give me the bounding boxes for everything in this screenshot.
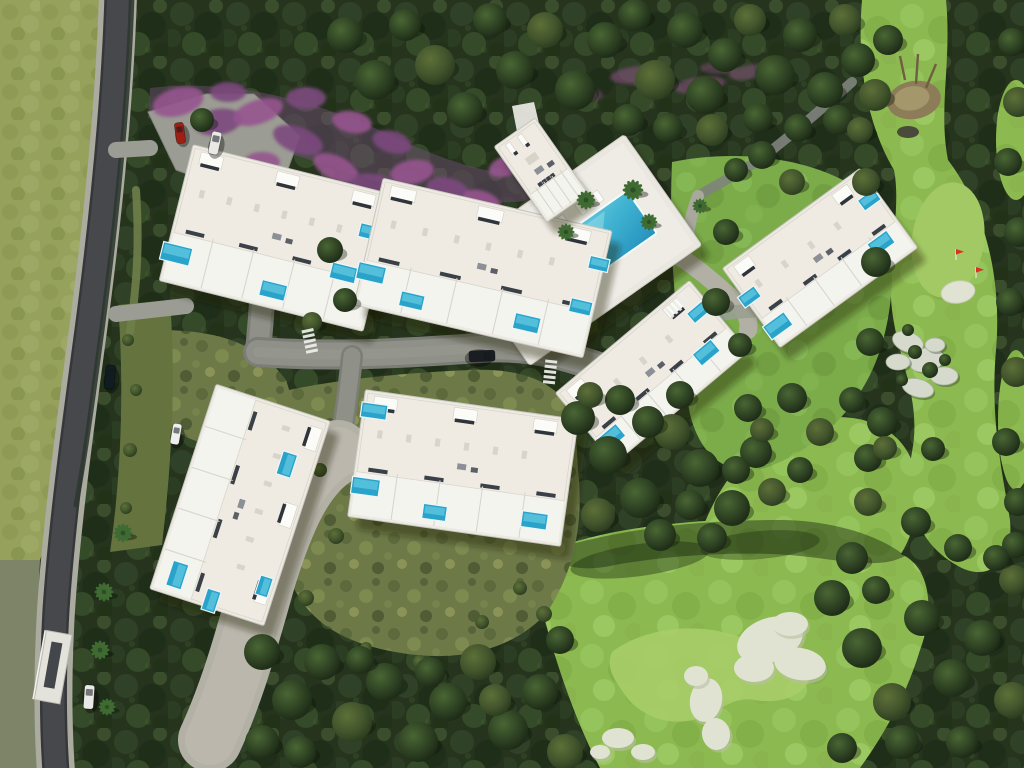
olive-bush bbox=[328, 528, 344, 544]
olive-bush bbox=[120, 502, 132, 514]
tree bbox=[839, 387, 865, 413]
sand-bunker bbox=[772, 612, 808, 636]
tree bbox=[581, 498, 615, 532]
tree bbox=[996, 288, 1024, 316]
tree bbox=[488, 710, 528, 750]
tree bbox=[555, 70, 595, 110]
tree bbox=[873, 683, 911, 721]
tree bbox=[327, 17, 363, 53]
tree bbox=[992, 428, 1020, 456]
rooftop-unit bbox=[471, 467, 479, 473]
tree bbox=[714, 490, 750, 526]
rooftop-unit bbox=[457, 463, 467, 470]
olive-bush bbox=[298, 590, 314, 606]
sand-bunker bbox=[590, 745, 610, 759]
sand-bunker bbox=[602, 728, 634, 748]
tree bbox=[854, 488, 882, 516]
tree bbox=[862, 576, 890, 604]
tree bbox=[807, 72, 843, 108]
tree bbox=[675, 490, 705, 520]
tree bbox=[873, 436, 897, 460]
tree bbox=[933, 659, 971, 697]
tree bbox=[983, 545, 1009, 571]
tree bbox=[734, 4, 766, 36]
olive-bush bbox=[123, 443, 137, 457]
tree bbox=[787, 457, 813, 483]
tree bbox=[901, 507, 931, 537]
tree bbox=[921, 437, 945, 461]
tree bbox=[398, 722, 438, 762]
purple-shrub bbox=[210, 82, 246, 102]
tree bbox=[473, 3, 507, 37]
rock-shrub bbox=[908, 345, 922, 359]
tree bbox=[333, 288, 357, 312]
tree bbox=[750, 418, 774, 442]
tree bbox=[708, 38, 742, 72]
tree bbox=[859, 79, 891, 111]
tree bbox=[667, 12, 703, 48]
rock-shrub bbox=[939, 354, 951, 366]
sand-bunker bbox=[684, 666, 708, 686]
aerial-site-render bbox=[0, 0, 1024, 768]
tree bbox=[964, 620, 1000, 656]
purple-shrub bbox=[286, 87, 326, 109]
tree bbox=[460, 644, 496, 680]
tree bbox=[944, 534, 972, 562]
tree bbox=[743, 103, 773, 133]
parking-entry bbox=[116, 148, 150, 150]
tree bbox=[836, 542, 868, 574]
tree bbox=[284, 736, 316, 768]
tree bbox=[355, 60, 395, 100]
tree bbox=[635, 60, 675, 100]
tree bbox=[666, 381, 694, 409]
rock-waterfall bbox=[886, 354, 910, 370]
tree bbox=[644, 519, 676, 551]
tree bbox=[653, 113, 683, 143]
tree bbox=[697, 523, 727, 553]
olive-bush bbox=[513, 581, 527, 595]
tree bbox=[904, 600, 940, 636]
tree bbox=[620, 478, 660, 518]
tree bbox=[847, 117, 873, 143]
tree bbox=[527, 12, 563, 48]
tree bbox=[758, 478, 786, 506]
tree bbox=[841, 43, 875, 77]
sand-bunker bbox=[734, 654, 774, 682]
tree bbox=[713, 219, 739, 245]
tree bbox=[317, 237, 343, 263]
scene-svg bbox=[0, 0, 1024, 768]
tree bbox=[755, 55, 795, 95]
tree bbox=[994, 148, 1022, 176]
tree bbox=[783, 18, 817, 52]
tree bbox=[304, 644, 340, 680]
tree bbox=[447, 92, 483, 128]
tree bbox=[496, 51, 534, 89]
tree bbox=[885, 725, 919, 759]
olive-bush bbox=[122, 334, 134, 346]
tree bbox=[946, 726, 978, 758]
tree bbox=[619, 0, 651, 31]
tree bbox=[867, 407, 897, 437]
tree bbox=[842, 628, 882, 668]
tree bbox=[479, 684, 511, 716]
tree bbox=[827, 733, 857, 763]
tree bbox=[244, 634, 280, 670]
tree bbox=[415, 45, 455, 85]
olive-bush bbox=[536, 606, 552, 622]
tree bbox=[861, 247, 891, 277]
tree bbox=[522, 674, 558, 710]
tree bbox=[605, 385, 635, 415]
sand-bunker bbox=[631, 744, 655, 760]
olive-bush bbox=[130, 384, 142, 396]
tree bbox=[389, 9, 421, 41]
tree bbox=[612, 104, 644, 136]
tree bbox=[415, 657, 445, 687]
tree bbox=[734, 394, 762, 422]
tree bbox=[852, 168, 880, 196]
tree bbox=[784, 114, 812, 142]
tree bbox=[272, 680, 312, 720]
tree bbox=[702, 288, 730, 316]
tree bbox=[587, 22, 623, 58]
tree bbox=[589, 436, 627, 474]
tree bbox=[777, 383, 807, 413]
tree bbox=[873, 25, 903, 55]
plaza-connector bbox=[116, 306, 186, 314]
tree bbox=[814, 580, 850, 616]
tree bbox=[429, 683, 467, 721]
tree bbox=[806, 418, 834, 446]
tree bbox=[346, 646, 374, 674]
tree bbox=[632, 406, 664, 438]
tree bbox=[696, 114, 728, 146]
tree bbox=[722, 456, 750, 484]
tree bbox=[779, 169, 805, 195]
tree bbox=[829, 4, 861, 36]
tree bbox=[686, 76, 724, 114]
tree bbox=[728, 333, 752, 357]
tree bbox=[190, 108, 214, 132]
tree bbox=[681, 449, 719, 487]
tree bbox=[724, 158, 748, 182]
rock-waterfall bbox=[925, 338, 945, 352]
tree bbox=[748, 141, 776, 169]
rock-shrub bbox=[902, 324, 914, 336]
tree bbox=[245, 725, 279, 759]
tree bbox=[577, 382, 603, 408]
tree bbox=[332, 702, 372, 742]
tree bbox=[856, 328, 884, 356]
tree bbox=[546, 626, 574, 654]
olive-bush bbox=[475, 615, 489, 629]
rock-shrub bbox=[922, 362, 938, 378]
rock-shrub bbox=[896, 374, 908, 386]
